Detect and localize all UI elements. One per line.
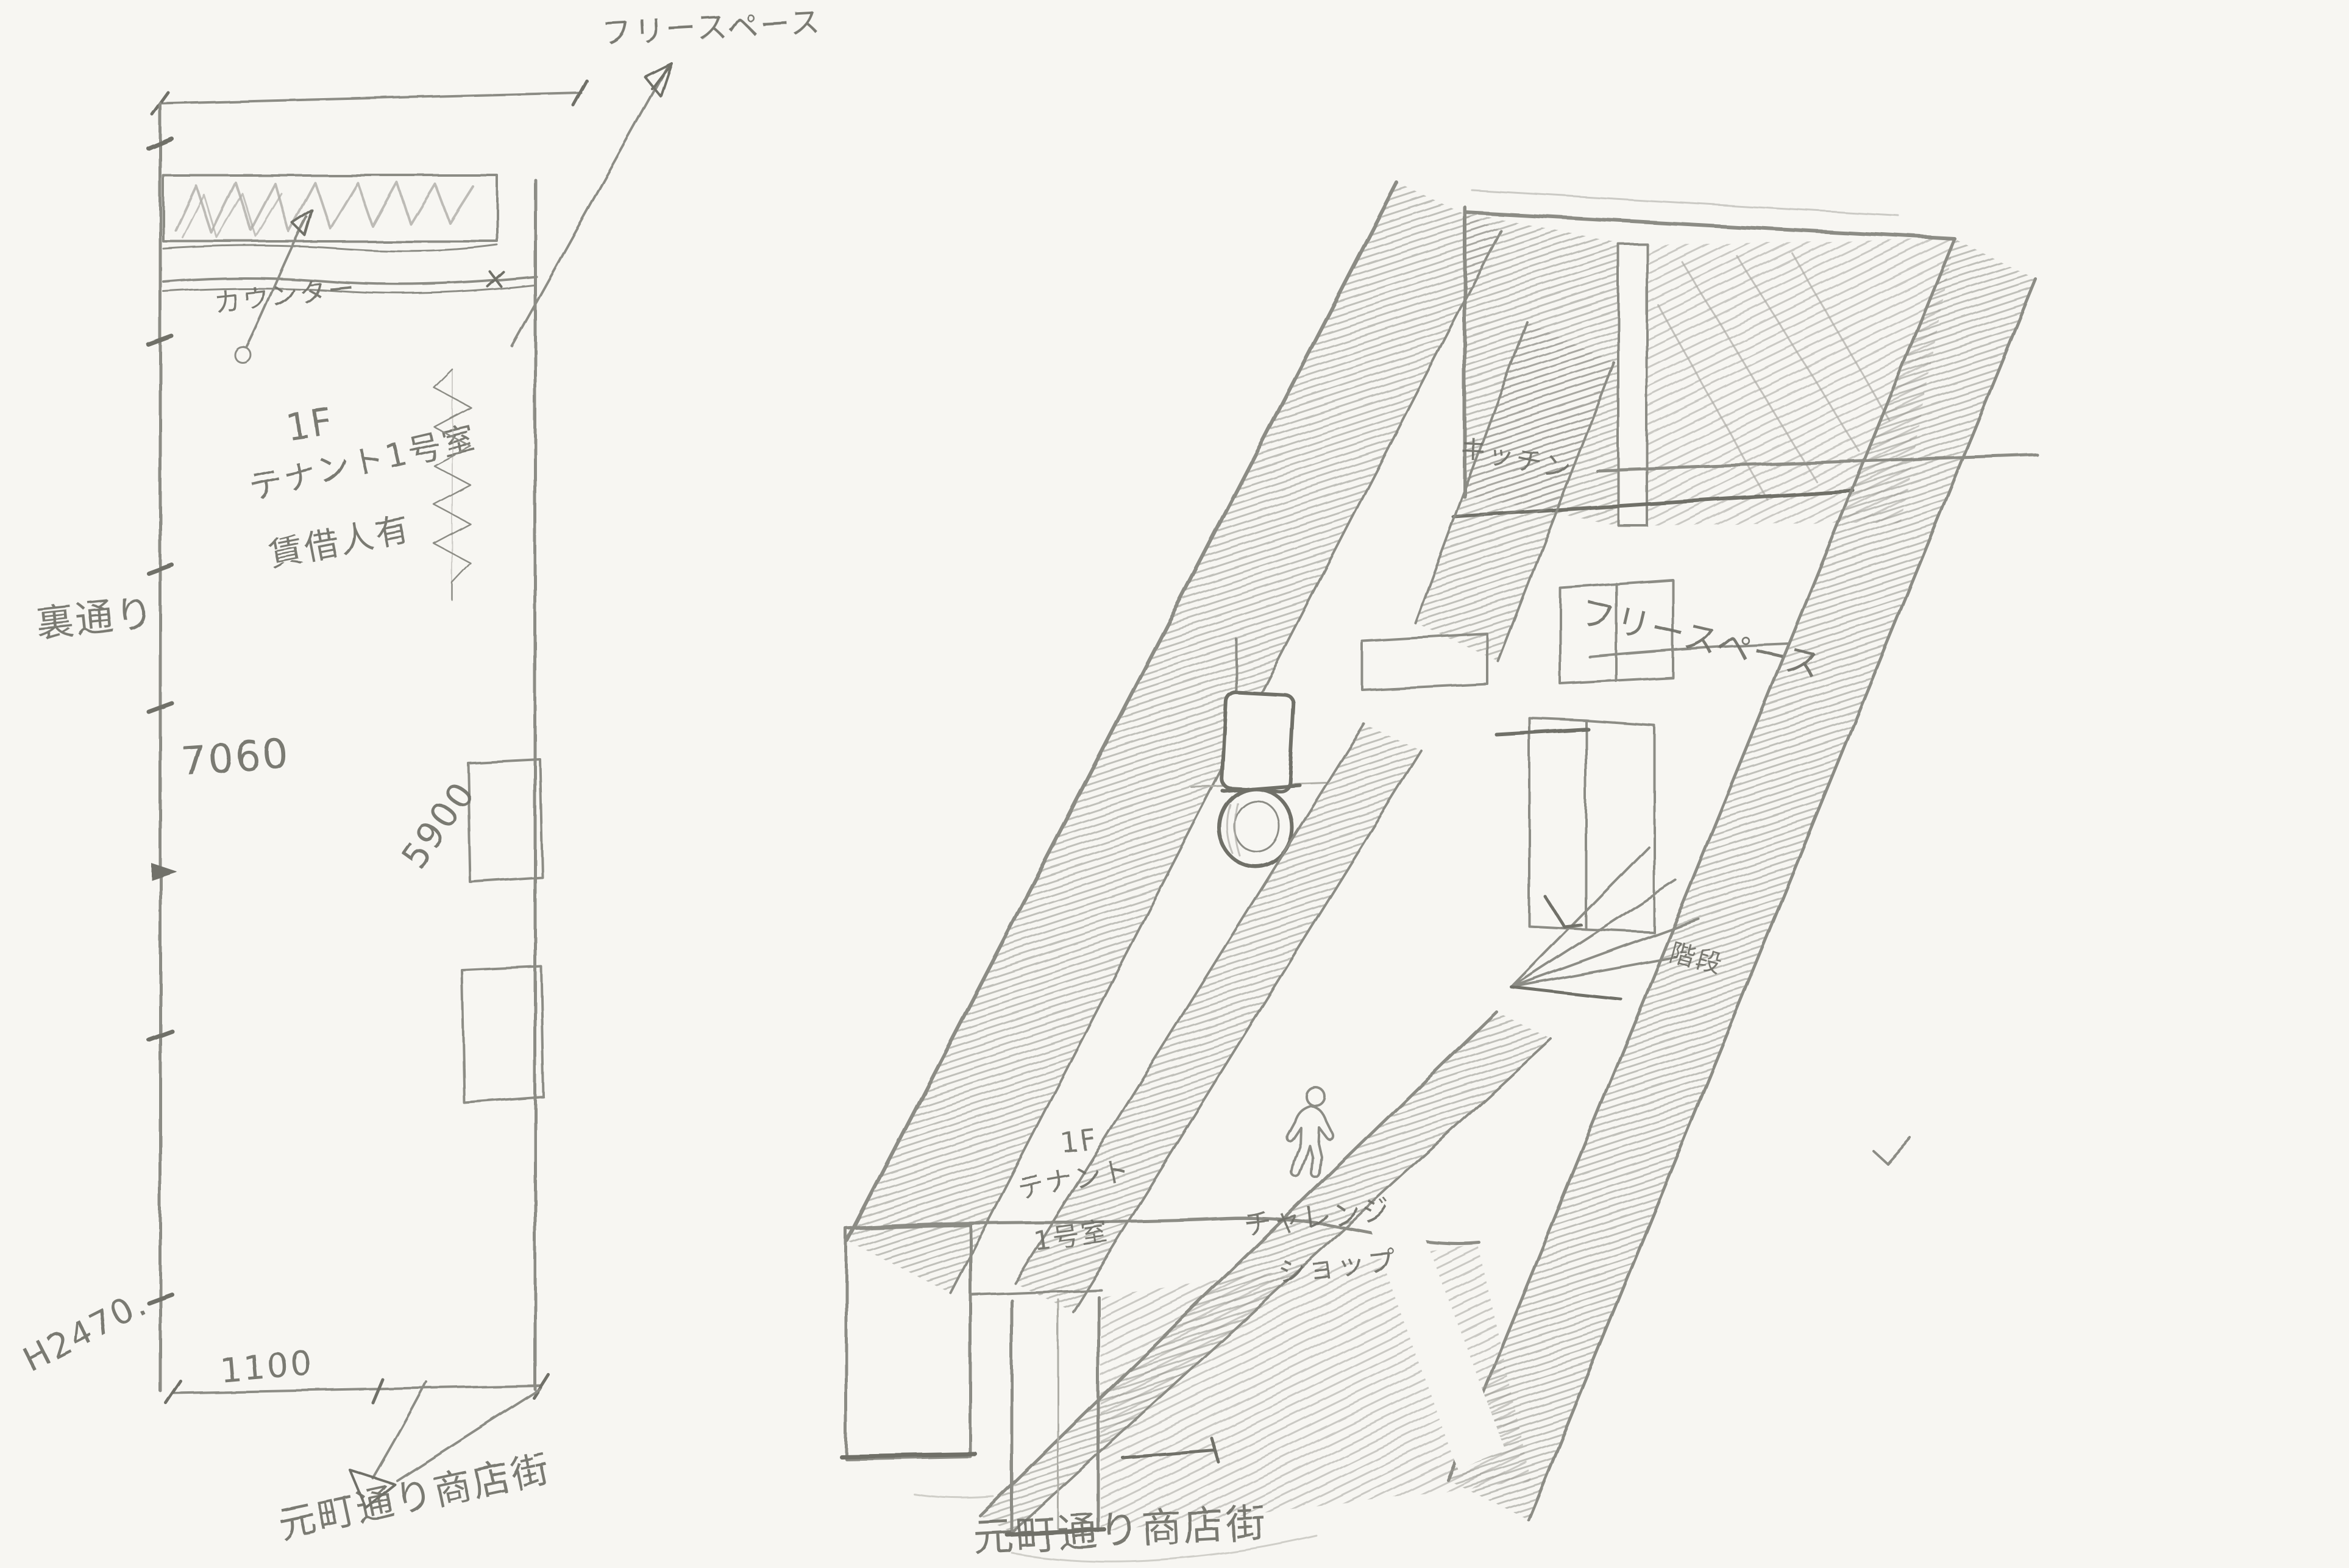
label-plan-1f: 1F [283, 400, 336, 449]
dimension-1100: 1100 [218, 1343, 316, 1391]
facade-base-line [841, 1454, 975, 1456]
dimension-7060: 7060 [179, 731, 292, 785]
label-axon-1f: 1F [1059, 1123, 1100, 1160]
toilet [1219, 692, 1299, 867]
sketch-page: フリースペース カウンター 1F テナント1号室 賃借人有 裏通り [0, 0, 2349, 1568]
rear-doorway [1618, 244, 1647, 525]
